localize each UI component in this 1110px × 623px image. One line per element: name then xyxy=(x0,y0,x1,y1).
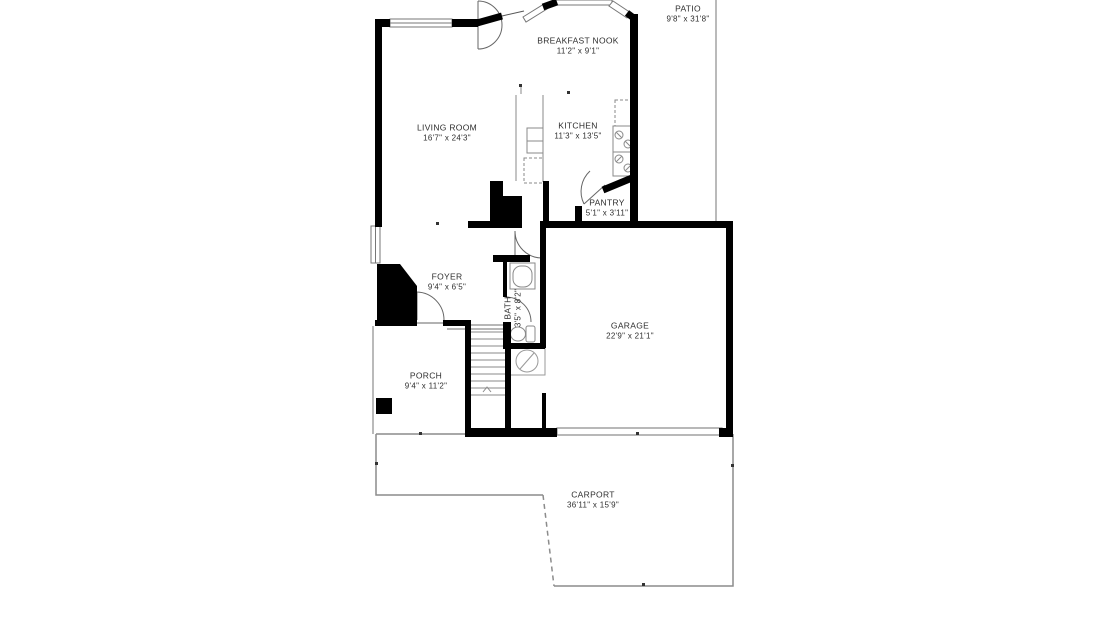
nook-southwest-diagonal xyxy=(477,16,502,23)
water-heater-closet xyxy=(508,347,545,375)
nook-top-window xyxy=(556,0,612,5)
room-label-porch: PORCH 9'4" x 11'2" xyxy=(405,370,447,391)
room-dims: 3'5" x 8'2" xyxy=(513,289,523,327)
room-label-pantry: PANTRY 5'1" x 3'11" xyxy=(586,197,628,218)
room-name: PANTRY xyxy=(586,197,628,208)
hall-bath-wall xyxy=(493,255,530,262)
bathtub-icon xyxy=(510,263,535,289)
wall-east xyxy=(630,14,638,228)
room-label-foyer: FOYER 9'4" x 6'5" xyxy=(428,271,466,292)
room-name: BREAKFAST NOOK xyxy=(537,35,619,46)
surveyor-marks xyxy=(375,84,734,586)
room-name: BATH xyxy=(502,289,513,327)
pantry-west-wall xyxy=(575,206,582,221)
diagonal-walls xyxy=(477,2,635,190)
wall-south xyxy=(465,428,557,437)
porch-column xyxy=(376,398,392,414)
room-name: KITCHEN xyxy=(554,120,601,131)
kitchen-counter xyxy=(516,84,543,183)
toilet-icon xyxy=(511,327,526,341)
room-dims: 22'9" x 21'1" xyxy=(606,331,654,341)
porch-stair-wall xyxy=(465,321,471,428)
wall-west xyxy=(375,19,382,227)
dishwasher-icon xyxy=(524,158,543,183)
room-dims: 11'3" x 13'5" xyxy=(554,131,601,141)
room-name: PORCH xyxy=(405,370,447,381)
garage-east-wall xyxy=(726,221,733,437)
floor-plan-page: PATIO 9'8" x 31'8" BREAKFAST NOOK 11'2" … xyxy=(0,0,1110,623)
room-name: PATIO xyxy=(666,3,709,14)
room-name: LIVING ROOM xyxy=(417,122,477,133)
front-door-arc xyxy=(417,292,444,320)
garage-door-opening xyxy=(557,428,722,435)
room-name: GARAGE xyxy=(606,320,654,331)
carport-outline xyxy=(376,434,733,586)
room-label-kitchen: KITCHEN 11'3" x 13'5" xyxy=(554,120,601,141)
room-name: CARPORT xyxy=(567,489,619,500)
room-label-living-room: LIVING ROOM 16'7" x 24'3" xyxy=(417,122,477,143)
kitchen-fireplace xyxy=(490,181,522,228)
foyer-chimney xyxy=(377,264,417,326)
garage-west-wall xyxy=(540,221,546,348)
room-dims: 9'4" x 11'2" xyxy=(405,381,447,391)
room-name: FOYER xyxy=(428,271,466,282)
room-dims: 16'7" x 24'3" xyxy=(417,133,477,143)
room-label-carport: CARPORT 36'11" x 15'9" xyxy=(567,489,619,510)
room-label-patio: PATIO 9'8" x 31'8" xyxy=(666,3,709,24)
room-dims: 36'11" x 15'9" xyxy=(567,500,619,510)
garage-north-wall xyxy=(543,221,733,228)
nook-opening-line xyxy=(502,11,524,16)
floor-plan-drawing xyxy=(0,0,1110,623)
room-dims: 11'2" x 9'1" xyxy=(537,46,619,56)
kitchen-sink-icon xyxy=(527,128,543,141)
wall-north xyxy=(452,19,478,27)
room-dims: 9'4" x 6'5" xyxy=(428,282,466,292)
room-label-breakfast-nook: BREAKFAST NOOK 11'2" x 9'1" xyxy=(537,35,619,56)
pantry-diagonal-wall xyxy=(603,178,632,190)
room-dims: 5'1" x 3'11" xyxy=(586,208,628,218)
room-label-bath: BATH 3'5" x 8'2" xyxy=(502,289,523,327)
room-dims: 9'8" x 31'8" xyxy=(666,14,709,24)
garage-door-arc xyxy=(515,231,542,258)
room-label-garage: GARAGE 22'9" x 21'1" xyxy=(606,320,654,341)
staircase xyxy=(471,332,505,395)
